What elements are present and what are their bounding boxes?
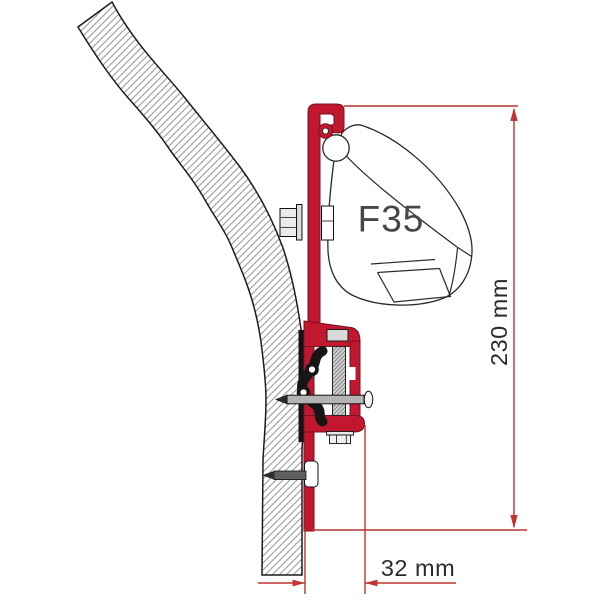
foot-hex-nut — [330, 435, 351, 444]
hook-curl-hole — [323, 128, 329, 134]
clamp-slot-block — [327, 330, 348, 342]
right-wall-notch — [348, 367, 356, 380]
case-label: F35 — [358, 199, 425, 240]
clamp-hole-lower — [300, 389, 306, 395]
upper-screw-shaft — [287, 395, 364, 404]
awning-adapter-diagram: F35 — [0, 0, 600, 600]
lower-screw-shaft — [274, 471, 306, 480]
arm-bolt-head — [280, 209, 297, 237]
upper-screw-barrel-nut — [364, 391, 373, 407]
diagram-canvas: F35 — [0, 0, 600, 600]
threaded-rod — [333, 347, 346, 416]
case-rail-bead — [323, 135, 349, 161]
clamp-hole-upper — [309, 366, 315, 372]
rail-clip — [305, 461, 319, 487]
bracket-foot — [304, 416, 365, 433]
width-dimension-label: 32 mm — [381, 555, 455, 581]
arm-bolt-washer — [297, 205, 303, 241]
height-dimension-label: 230 mm — [486, 278, 512, 366]
arm-bolt-block — [322, 206, 334, 240]
